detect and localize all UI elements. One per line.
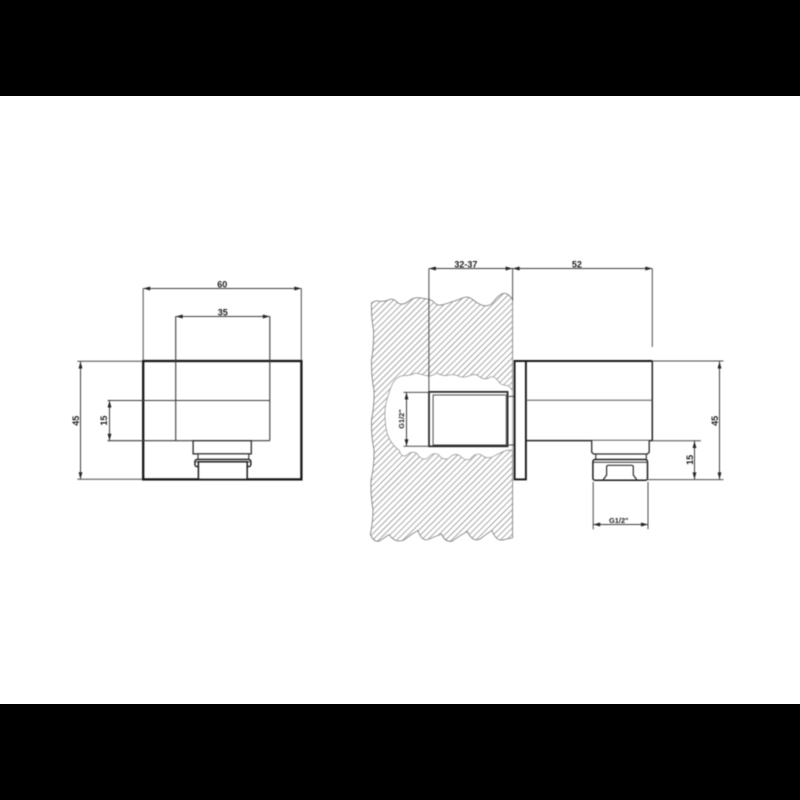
svg-text:35: 35 bbox=[218, 308, 228, 318]
svg-text:G1/2": G1/2" bbox=[609, 516, 629, 525]
svg-text:45: 45 bbox=[71, 416, 81, 426]
svg-text:32-37: 32-37 bbox=[454, 260, 477, 270]
svg-text:52: 52 bbox=[572, 260, 582, 270]
svg-text:15: 15 bbox=[99, 416, 109, 426]
svg-text:45: 45 bbox=[710, 416, 720, 426]
svg-text:G1/2": G1/2" bbox=[397, 409, 406, 429]
svg-text:60: 60 bbox=[217, 280, 227, 290]
svg-text:15: 15 bbox=[685, 455, 695, 465]
